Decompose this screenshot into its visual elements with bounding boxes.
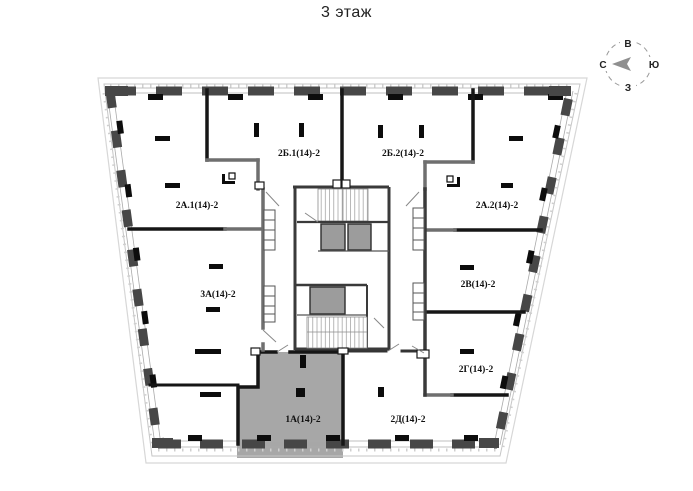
vent-icon (222, 173, 235, 184)
building-core (264, 187, 424, 350)
page-title: 3 этаж (0, 4, 693, 22)
elevator-shaft (348, 224, 371, 250)
compass-bottom: З (625, 83, 631, 94)
apartment-label-2b1[interactable]: 2Б.1(14)-2 (278, 148, 320, 159)
apartment-label-2b2[interactable]: 2Б.2(14)-2 (382, 148, 424, 159)
compass-top: В (624, 39, 631, 50)
apartment-label-3a[interactable]: 3А(14)-2 (200, 289, 236, 300)
compass-right: Ю (649, 60, 659, 71)
floor-plan-page: 3 этаж (0, 0, 693, 491)
elevator-shaft (310, 287, 345, 314)
elevator-shaft (321, 224, 345, 250)
apartment-label-2d[interactable]: 2Д(14)-2 (390, 414, 425, 425)
apartment-label-2g[interactable]: 2Г(14)-2 (459, 364, 494, 375)
apartment-label-2a2[interactable]: 2А.2(14)-2 (476, 200, 519, 211)
stairwell-lower (307, 317, 367, 348)
apartment-label-1a[interactable]: 1А(14)-2 (285, 414, 321, 425)
floor-plan-canvas: 2А.1(14)-2 2Б.1(14)-2 2Б.2(14)-2 2А.2(14… (0, 0, 693, 491)
apartment-label-2a1[interactable]: 2А.1(14)-2 (176, 200, 219, 211)
compass-rose: В Ю З С (596, 36, 660, 94)
apartment-label-2v[interactable]: 2В(14)-2 (461, 279, 496, 290)
compass-left: С (599, 60, 606, 71)
vent-icon (447, 176, 460, 187)
